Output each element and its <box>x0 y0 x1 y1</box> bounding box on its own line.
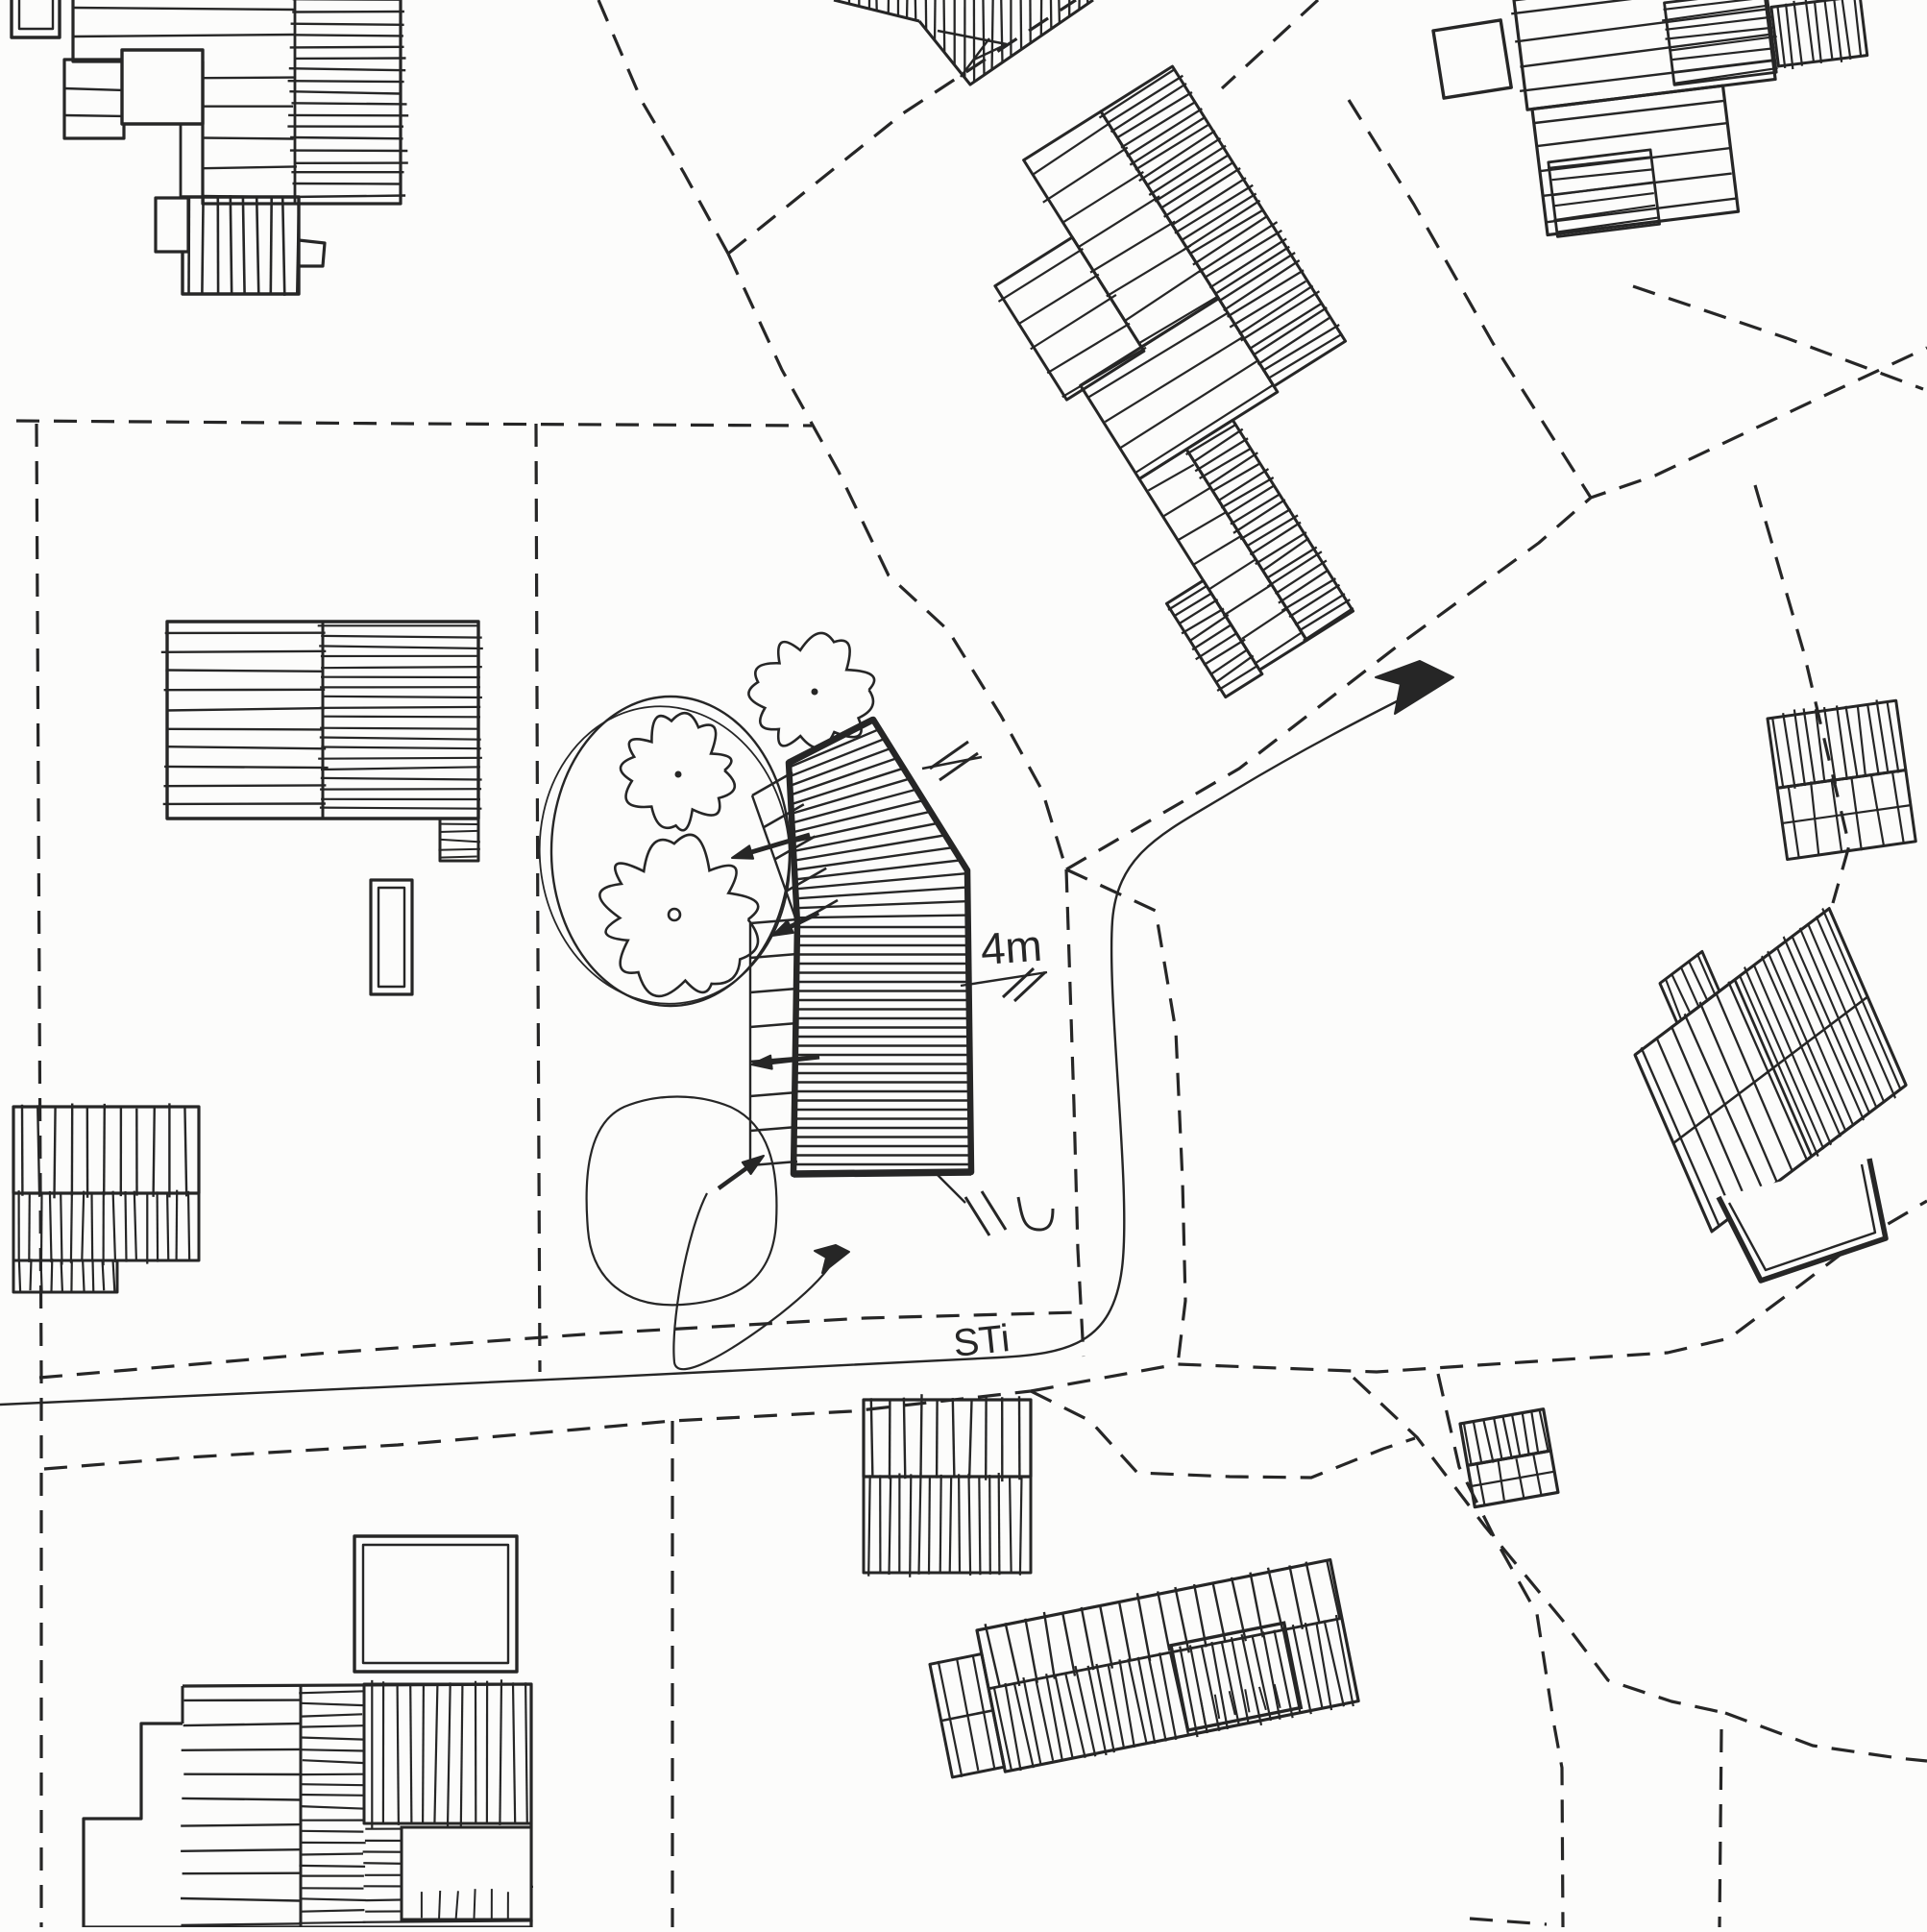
svg-text:STi: STi <box>951 1317 1012 1365</box>
svg-text:4m: 4m <box>979 920 1043 974</box>
